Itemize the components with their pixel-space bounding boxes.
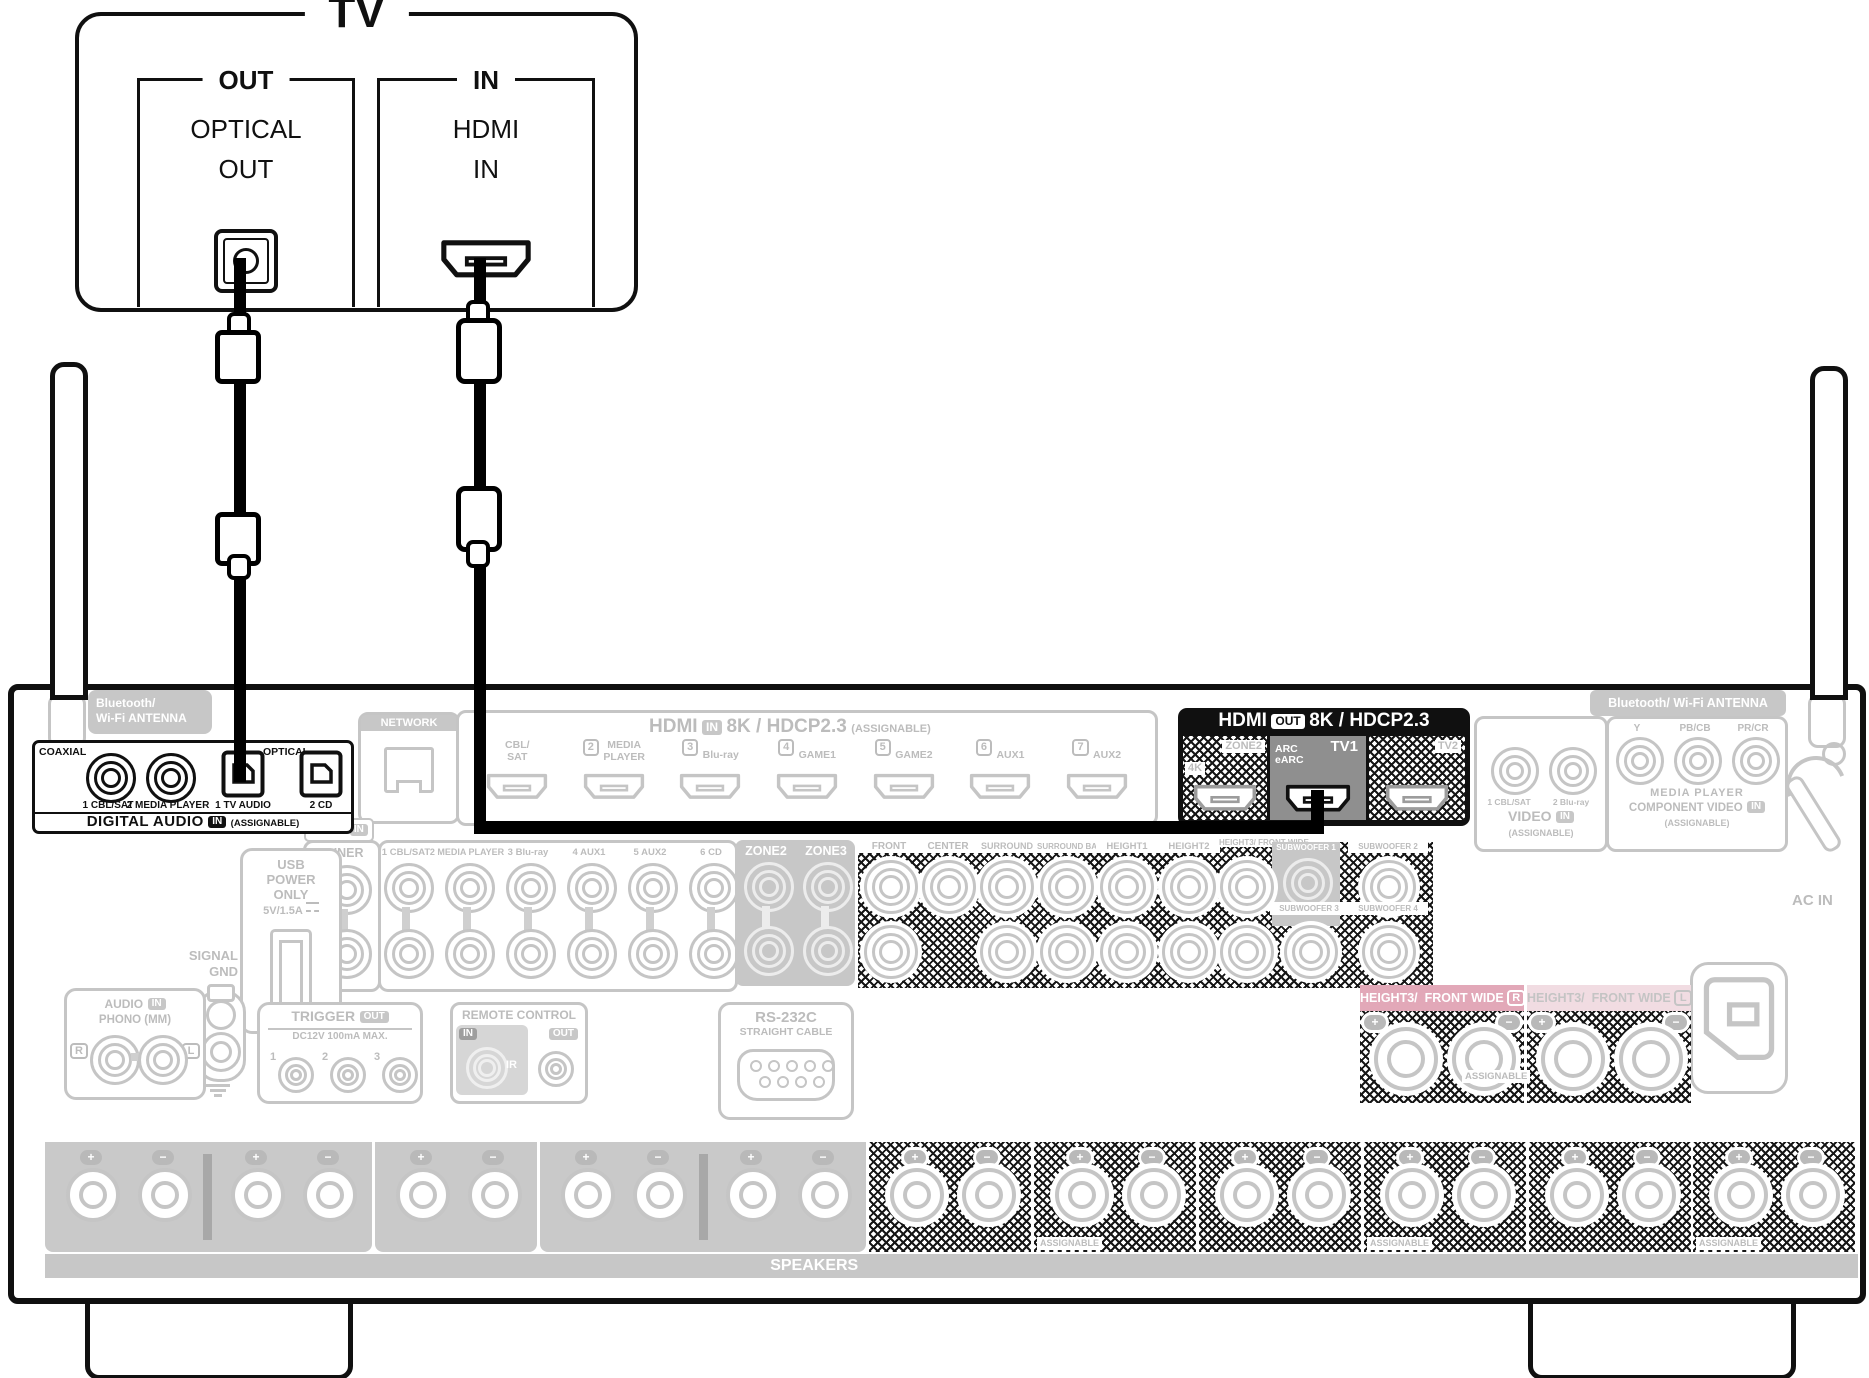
hdmi-in-assignable: (ASSIGNABLE) (851, 723, 930, 735)
video-jack-blu-ray (1549, 747, 1597, 795)
hdmi-port-icon (969, 773, 1031, 800)
signal-gnd-label: SIGNAL GND (150, 948, 238, 980)
monitor-zone2-label: ZONE2 (1222, 740, 1265, 753)
height3-front-wide-l: HEIGHT3/ FRONT WIDE L + − (1527, 985, 1691, 1103)
phono-label: PHONO (MM) (67, 1014, 203, 1026)
zone3-jack-l (803, 862, 853, 912)
preout-jack-front-l (864, 860, 918, 914)
preout-jack-surround-back-r (1040, 925, 1094, 979)
ethernet-port-icon (384, 747, 434, 793)
hdmi-port-icon (679, 773, 741, 800)
terminal-divider (699, 1154, 708, 1240)
binding-post (1374, 1027, 1438, 1091)
audio-col-3: 3 Blu-ray (495, 847, 561, 858)
front-wide-label: FRONT WIDE (1425, 991, 1504, 1005)
tv-out-group-label: OUT (203, 65, 290, 96)
preout-jack-center (922, 860, 976, 914)
hdmi-out-title: HDMI (1218, 710, 1267, 731)
speakers-footer-label: SPEAKERS (770, 1254, 858, 1278)
binding-post-minus: − (633, 1150, 683, 1222)
speakers-assignable-3: ASSIGNABLE (1696, 1237, 1761, 1250)
tv1-label: TV1 (1330, 738, 1358, 755)
port-label: AUX2 (1093, 749, 1121, 761)
binding-post-minus: − (1786, 1150, 1836, 1222)
digital-audio-footer: DIGITAL AUDIO IN (ASSIGNABLE) (35, 812, 351, 832)
jack-label-tv-audio: 1 TV AUDIO (203, 800, 283, 811)
binding-post-minus: − (468, 1150, 518, 1222)
preout-jack-height3-r (1220, 925, 1274, 979)
terminal-divider (203, 1154, 212, 1240)
remote-ir-jack (466, 1047, 508, 1089)
optical-port-icon (214, 229, 278, 293)
port-num: 7 (1072, 739, 1088, 756)
preout-jack-front-r (864, 925, 918, 979)
binding-post-minus: − (962, 1150, 1012, 1222)
hdmi-out-badge: OUT (1271, 714, 1304, 729)
preout-height2-label: HEIGHT2 (1158, 840, 1220, 853)
port-label: GAME1 (799, 749, 836, 761)
hdmi-in-spec: 8K / HDCP2.3 (726, 716, 846, 737)
audio-jack (628, 863, 678, 913)
port-num: 4 (778, 739, 794, 756)
binding-post-plus: + (1220, 1150, 1270, 1222)
hdmi-in-badge: IN (702, 720, 722, 735)
video-in-title: VIDEO (1508, 808, 1552, 824)
minus-mark: − (1498, 1015, 1520, 1030)
audio-jack (689, 863, 739, 913)
hdmi-out-port-tv2: TV2 (1369, 736, 1465, 820)
hdmi-port-icon (486, 773, 548, 800)
network-label: NETWORK (361, 715, 457, 731)
trigger-spec: DC12V 100mA MAX. (260, 1031, 420, 1042)
preout-jack-subwoofer3 (1284, 925, 1338, 979)
component-title: COMPONENT VIDEO (1629, 802, 1743, 814)
tv-hdmi-in-group: IN HDMI IN (377, 78, 595, 307)
audio-jack (445, 863, 495, 913)
rs232-title: RS-232C (721, 1009, 851, 1026)
tv-panel: TV OUT OPTICAL OUT IN HDMI IN (75, 12, 638, 312)
hdmi-port-icon (440, 239, 532, 279)
hdmi-out-port-monitor: ZONE2 4K (1183, 736, 1267, 820)
hdmi-in-port-2: 2 MEDIA PLAYER (566, 739, 663, 819)
dc-symbol (306, 902, 319, 912)
audio-jack (567, 863, 617, 913)
hdmi-port-icon (1385, 784, 1449, 812)
minus-mark: − (1665, 1015, 1687, 1030)
preout-jack-surround-l (980, 860, 1034, 914)
port-num: 3 (682, 739, 698, 756)
audio-jack (445, 929, 495, 979)
remote-out-jack (538, 1051, 574, 1087)
video-jack-label-2: 2 Blu-ray (1541, 797, 1601, 807)
preout-jack-subwoofer4 (1362, 925, 1416, 979)
component-y-label: Y (1613, 723, 1661, 734)
hdmi-in-port-6: 6 AUX1 (952, 739, 1049, 819)
usb-rating: 5V/1.5A (263, 905, 303, 917)
zone2-jack-l (744, 862, 794, 912)
hdmi-in-header: HDMI IN 8K / HDCP2.3 (ASSIGNABLE) (649, 716, 931, 738)
remote-in-cell: IN IR (456, 1025, 528, 1095)
preout-height1-label: HEIGHT1 (1096, 840, 1158, 853)
hdmi-in-ports: CBL/ SAT 2 MEDIA PLAYER 3 Blu-ray 4 GAME… (469, 739, 1145, 819)
binding-post-plus: + (1385, 1150, 1435, 1222)
component-jack-y (1616, 737, 1664, 785)
ground-symbol (204, 1082, 232, 1099)
antenna-rotate-icon (1786, 742, 1850, 874)
tv-connection-diagram: TV OUT OPTICAL OUT IN HDMI IN (0, 0, 1869, 1378)
jack-label-media-player: 2 MEDIA PLAYER (120, 800, 216, 811)
tv-optical-label: OPTICAL OUT (140, 109, 352, 189)
port-label: MEDIA PLAYER (603, 739, 645, 763)
remote-title: REMOTE CONTROL (453, 1008, 585, 1022)
component-pbcb-label: PB/CB (1671, 723, 1719, 734)
audio-jack (506, 863, 556, 913)
remote-control-section: REMOTE CONTROL IN IR OUT (450, 1002, 588, 1104)
receiver-foot-right (1528, 1292, 1796, 1378)
hdmi-port-icon (873, 773, 935, 800)
binding-post-minus: − (1292, 1150, 1342, 1222)
antenna-left (50, 362, 88, 700)
phono-jack-l (138, 1035, 188, 1085)
remote-in-badge: IN (459, 1028, 477, 1040)
component-footer: MEDIA PLAYER COMPONENT VIDEO IN (ASSIGNA… (1609, 785, 1785, 830)
speakers-assignable-2: ASSIGNABLE (1367, 1237, 1432, 1250)
hdmi-cable-horizontal (474, 821, 1324, 834)
zone2-label: ZONE2 (735, 844, 797, 858)
zone3-jack-r (803, 926, 853, 976)
usb-label-2: POWER (266, 872, 315, 887)
optical-plug-top-body (215, 330, 261, 384)
audio-in-section: 1 CBL/SAT 2 MEDIA PLAYER 3 Blu-ray 4 AUX… (378, 840, 738, 992)
remote-ir-label: IR (506, 1059, 517, 1071)
digital-audio-assignable: (ASSIGNABLE) (231, 818, 300, 829)
trigger-jack-2 (330, 1057, 366, 1093)
component-jack-pbcb (1674, 737, 1722, 785)
video-in-badge: IN (1556, 811, 1574, 823)
binding-post (1541, 1027, 1605, 1091)
bluetooth-antenna-label-left: Bluetooth/ Wi-Fi ANTENNA (88, 690, 212, 734)
binding-post-minus: − (1457, 1150, 1507, 1222)
antenna-right (1810, 366, 1848, 700)
preout-jack-surround-r (980, 925, 1034, 979)
audio-jack (506, 929, 556, 979)
component-prcr-label: PR/CR (1729, 723, 1777, 734)
coax-jack-media-player (146, 753, 196, 803)
subwoofer3-label: SUBWOOFER 3 (1270, 902, 1348, 915)
preout-front-label: FRONT (858, 840, 920, 853)
component-in-badge: IN (1747, 801, 1765, 813)
trigger-2-label: 2 (322, 1051, 328, 1063)
speakers-footer-bar: SPEAKERS (45, 1254, 1858, 1278)
audio-col-5: 5 AUX2 (617, 847, 683, 858)
remote-out-badge: OUT (549, 1028, 578, 1040)
zone-preout-section: ZONE2 ZONE3 (735, 840, 855, 986)
zone3-label: ZONE3 (795, 844, 857, 858)
trigger-3-label: 3 (374, 1051, 380, 1063)
optical-plug-bottom (227, 554, 251, 580)
audio-jack (384, 863, 434, 913)
hdmi-in-section: HDMI IN 8K / HDCP2.3 (ASSIGNABLE) CBL/ S… (456, 710, 1158, 826)
audio-jack (689, 929, 739, 979)
component-assignable: (ASSIGNABLE) (1665, 818, 1730, 828)
rs232-section: RS-232C STRAIGHT CABLE (718, 1002, 854, 1120)
tv-optical-out-group: OUT OPTICAL OUT (137, 78, 355, 307)
subwoofer1-label: SUBWOOFER 1 (1272, 842, 1340, 854)
binding-post-minus: − (798, 1150, 848, 1222)
binding-post-plus: + (396, 1150, 446, 1222)
height3-label: HEIGHT3/ (1360, 991, 1418, 1005)
remote-out-cell: OUT (530, 1025, 580, 1095)
component-video-section: Y PB/CB PR/CR MEDIA PLAYER COMPONENT VID… (1606, 716, 1788, 852)
height3-front-wide-r: HEIGHT3/ FRONT WIDE R + − (1360, 985, 1524, 1103)
port-num: 5 (875, 739, 891, 756)
binding-post-minus: − (138, 1150, 188, 1222)
binding-post-minus: − (303, 1150, 353, 1222)
preout-surround-back-label: SURROUND BACK (1034, 840, 1100, 853)
height3-label: HEIGHT3/ (1527, 991, 1585, 1005)
preout-jack-height1-r (1100, 925, 1154, 979)
hdmi-plug-top-body (456, 318, 502, 384)
preout-jack-height2-l (1162, 860, 1216, 914)
bluetooth-antenna-label-right: Bluetooth/ Wi-Fi ANTENNA (1590, 690, 1786, 716)
hdmi-plug-bottom-neck (466, 540, 490, 568)
subwoofer2-label: SUBWOOFER 2 (1348, 840, 1428, 853)
receiver-foot-left (85, 1292, 353, 1378)
port-label: Blu-ray (703, 749, 739, 761)
binding-post-plus: + (231, 1150, 281, 1222)
tv-title: TV (304, 0, 408, 38)
video-in-assignable: (ASSIGNABLE) (1509, 828, 1574, 838)
preout-jack-height2-r (1162, 925, 1216, 979)
phono-section: AUDIO IN PHONO (MM) R L (64, 988, 206, 1100)
subwoofer4-label: SUBWOOFER 4 (1348, 902, 1428, 915)
video-in-footer: VIDEO IN (ASSIGNABLE) (1477, 809, 1605, 841)
hdmi-in-port-7: 7 AUX2 (1048, 739, 1145, 819)
audio-jack (567, 929, 617, 979)
channel-badge: L (1674, 990, 1692, 1006)
binding-post-plus: + (561, 1150, 611, 1222)
video-jack-label-1: 1 CBL/SAT (1477, 797, 1541, 807)
audio-jack (384, 929, 434, 979)
preout-jack-height3-l (1220, 860, 1274, 914)
hdmi-port-icon (1066, 773, 1128, 800)
port-label: CBL/ SAT (505, 739, 530, 763)
binding-post-plus: + (726, 1150, 776, 1222)
ac-inlet (1690, 962, 1788, 1094)
port-num: 2 (583, 739, 599, 756)
hdmi-port-icon (776, 773, 838, 800)
binding-post-plus: + (1550, 1150, 1600, 1222)
video-in-section: 1 CBL/SAT 2 Blu-ray VIDEO IN (ASSIGNABLE… (1474, 716, 1608, 852)
usb-label-1: USB (277, 857, 304, 872)
coax-jack-cbl-sat (86, 753, 136, 803)
phono-audio-label: AUDIO (104, 997, 143, 1011)
plus-mark: + (1364, 1015, 1386, 1030)
optical-port-cd (299, 750, 343, 798)
phono-in-badge: IN (148, 998, 166, 1010)
binding-post-plus: + (66, 1150, 116, 1222)
digital-audio-title: DIGITAL AUDIO (87, 813, 204, 830)
db9-connector-icon (737, 1049, 835, 1101)
hdmi-out-header: HDMI OUT 8K / HDCP2.3 (1178, 708, 1470, 735)
trigger-jack-1 (278, 1057, 314, 1093)
front-wide-label: FRONT WIDE (1592, 991, 1671, 1005)
tv-in-group-label: IN (457, 65, 515, 96)
preout-surround-label: SURROUND (976, 840, 1038, 853)
trigger-title: TRIGGER (291, 1008, 355, 1024)
port-label: GAME2 (895, 749, 932, 761)
trigger-jack-3 (382, 1057, 418, 1093)
binding-post-plus: + (1714, 1150, 1764, 1222)
usb-label-3: ONLY (274, 887, 309, 902)
trigger-out-badge: OUT (360, 1011, 389, 1023)
jack-label-cd: 2 CD (293, 800, 349, 811)
channel-badge: R (1507, 990, 1525, 1006)
tv2-label: TV2 (1435, 740, 1461, 753)
arc-earc-label: ARC eARC (1275, 744, 1304, 766)
rs232-subtitle: STRAIGHT CABLE (721, 1026, 851, 1038)
port-label: AUX1 (996, 749, 1024, 761)
preout-height3-label: HEIGHT3/ FRONT WIDE (1216, 838, 1278, 847)
coaxial-label: COAXIAL (39, 746, 86, 758)
hdmi-in-port-4: 4 GAME1 (759, 739, 856, 819)
preout-jack-height1-l (1100, 860, 1154, 914)
binding-post-plus: + (1055, 1150, 1105, 1222)
port-num: 6 (976, 739, 992, 756)
digital-audio-in-badge: IN (208, 816, 226, 828)
audio-col-4: 4 AUX1 (556, 847, 622, 858)
ac-in-label: AC IN (1792, 892, 1833, 909)
audio-jack (628, 929, 678, 979)
hdmi-out-section: HDMI OUT 8K / HDCP2.3 ZONE2 4K ARC eARC … (1178, 708, 1470, 826)
plus-mark: + (1531, 1015, 1553, 1030)
binding-post-minus: − (1127, 1150, 1177, 1222)
subwoofer1-jack (1283, 858, 1333, 908)
binding-post-plus: + (890, 1150, 940, 1222)
hdmi-out-spec: 8K / HDCP2.3 (1309, 710, 1429, 731)
hdmi-in-port-5: 5 GAME2 (855, 739, 952, 819)
tv-hdmi-label: HDMI IN (380, 109, 592, 189)
hdmi-in-title: HDMI (649, 716, 698, 737)
speakers-assignable-1: ASSIGNABLE (1037, 1237, 1102, 1250)
antenna-right-base (1808, 694, 1846, 748)
phono-r-badge: R (70, 1043, 88, 1059)
hdmi-port-icon (1193, 784, 1257, 812)
trigger-1-label: 1 (270, 1051, 276, 1063)
trigger-out-section: TRIGGER OUT DC12V 100mA MAX. 1 2 3 (257, 1002, 423, 1104)
component-device-label: MEDIA PLAYER (1650, 787, 1744, 799)
preout-center-label: CENTER (916, 840, 980, 853)
preout-jack-surround-back-l (1040, 860, 1094, 914)
video-jack-cbl-sat (1491, 747, 1539, 795)
binding-post (1619, 1027, 1683, 1091)
component-jack-prcr (1732, 737, 1780, 785)
hdmi-cable-to-port (1311, 790, 1324, 830)
audio-col-2: 2 MEDIA PLAYER (429, 847, 505, 857)
hdmi-in-port-3: 3 Blu-ray (662, 739, 759, 819)
network-section: NETWORK (358, 712, 460, 824)
hdmi-port-icon (583, 773, 645, 800)
height3-assignable: ASSIGNABLE (1462, 1070, 1530, 1083)
zone2-jack-r (744, 926, 794, 976)
monitor-4k-label: 4K (1185, 762, 1205, 775)
digital-audio-section: COAXIAL OPTICAL 1 CBL/SAT 2 MEDIA PLAYER… (32, 740, 354, 834)
ac-inlet-shape (1693, 965, 1785, 1091)
binding-post-minus: − (1622, 1150, 1672, 1222)
